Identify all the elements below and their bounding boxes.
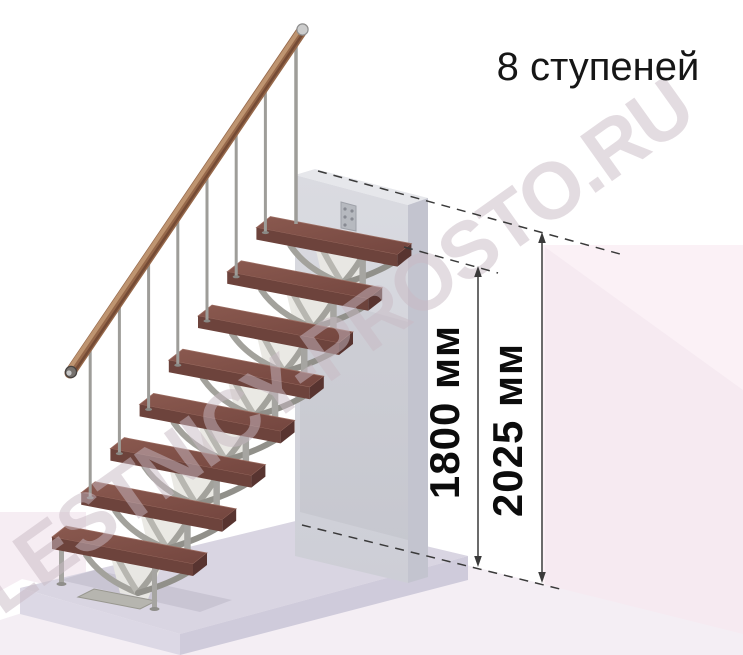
plate-hole [343,223,346,226]
stair-diagram-canvas: LESTNICY-PROSTO.RU 1800 мм 2025 мм 8 сту… [0,0,743,655]
leg-foot [150,607,160,611]
handrail-top-cap [297,24,308,35]
stair-diagram-page: LESTNICY-PROSTO.RU 1800 мм 2025 мм 8 сту… [0,0,743,655]
wall-mount-plate [341,202,356,231]
plate-hole [343,215,346,218]
baluster-base [174,364,181,367]
steps-count-title: 8 ступеней [497,45,700,89]
plate-hole [343,207,346,210]
baluster-base [204,320,211,323]
dim-label-2025: 2025 мм [484,343,531,517]
baluster-base [262,231,269,234]
baluster-base [145,408,152,411]
dim-label-1800: 1800 мм [421,325,468,499]
baluster-base [233,275,240,278]
plate-hole [350,217,353,220]
front-leg [152,567,157,608]
plate-hole [350,209,353,212]
handrail-bottom-cap-tip [66,370,71,375]
